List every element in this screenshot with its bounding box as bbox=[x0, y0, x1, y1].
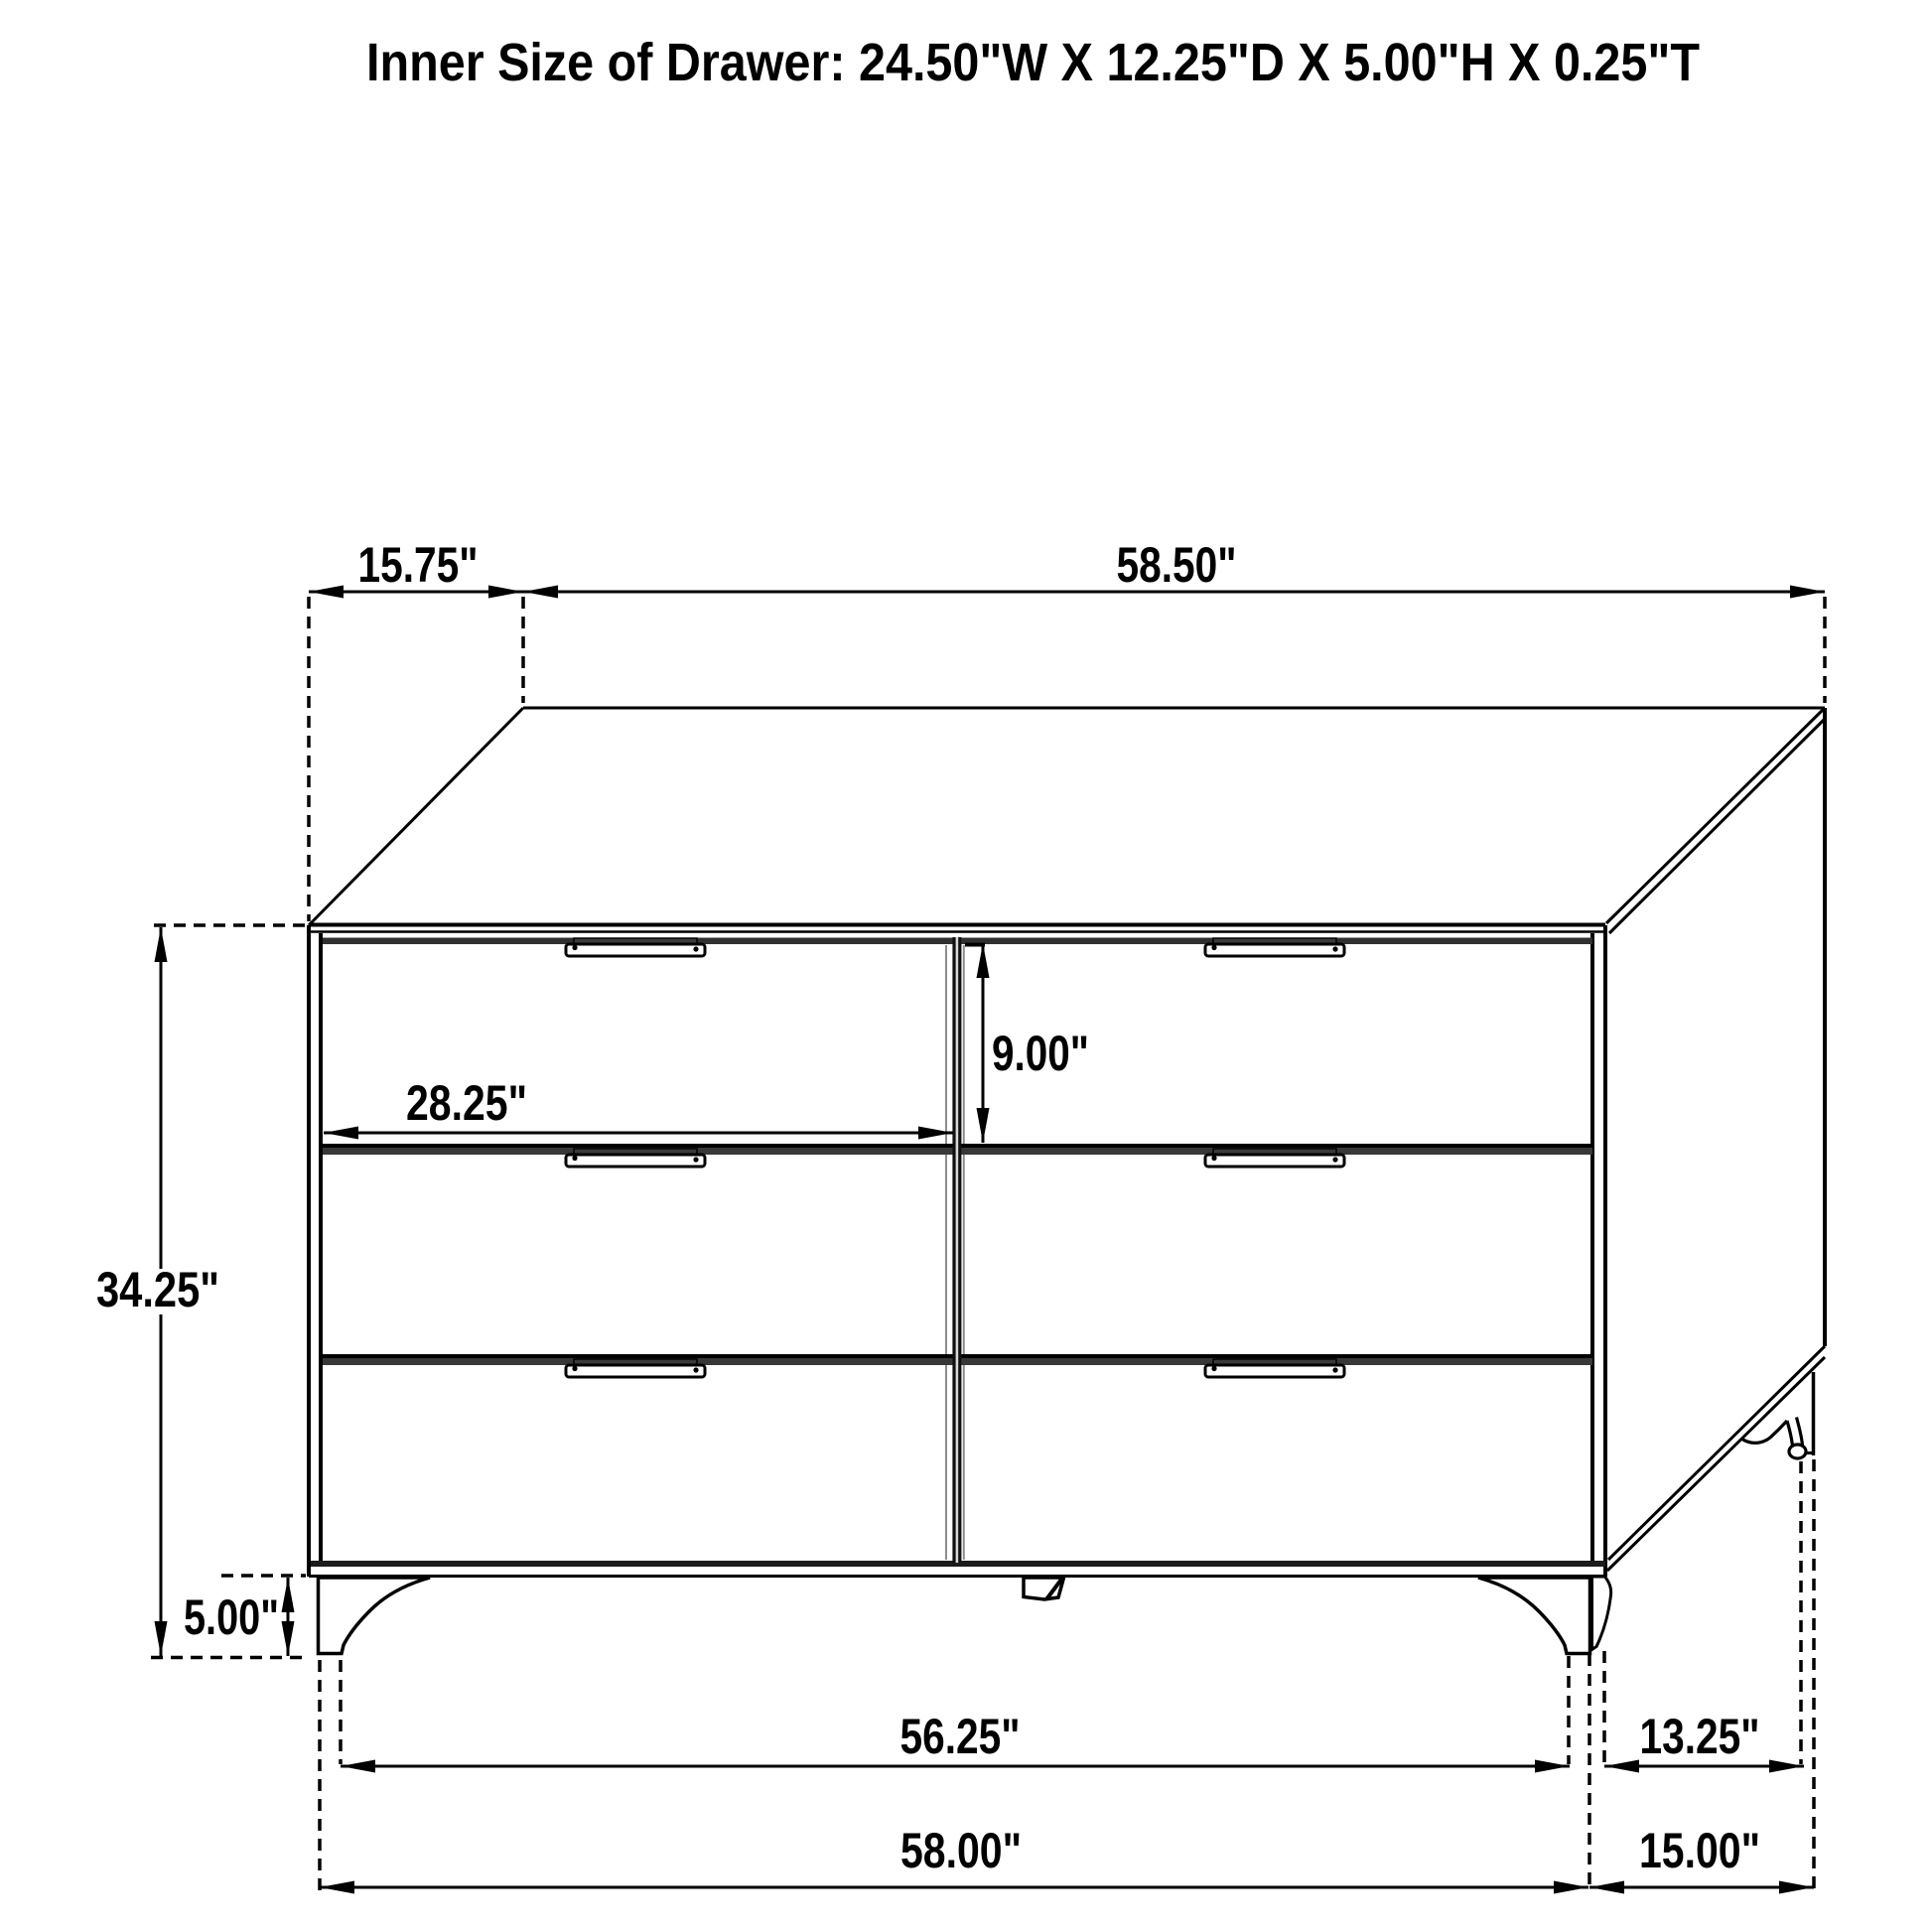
svg-text:28.25": 28.25" bbox=[406, 1075, 527, 1131]
svg-text:58.00": 58.00" bbox=[900, 1823, 1022, 1878]
svg-text:58.50": 58.50" bbox=[1117, 537, 1237, 593]
svg-text:Inner Size of Drawer: 24.50"W: Inner Size of Drawer: 24.50"W X 12.25"D … bbox=[366, 33, 1700, 92]
svg-text:9.00": 9.00" bbox=[992, 1026, 1089, 1081]
svg-text:13.25": 13.25" bbox=[1640, 1709, 1760, 1764]
svg-text:34.25": 34.25" bbox=[96, 1262, 219, 1317]
svg-text:56.25": 56.25" bbox=[900, 1709, 1021, 1764]
svg-text:15.00": 15.00" bbox=[1639, 1823, 1760, 1878]
svg-text:5.00": 5.00" bbox=[184, 1589, 279, 1645]
svg-text:15.75": 15.75" bbox=[358, 537, 479, 593]
